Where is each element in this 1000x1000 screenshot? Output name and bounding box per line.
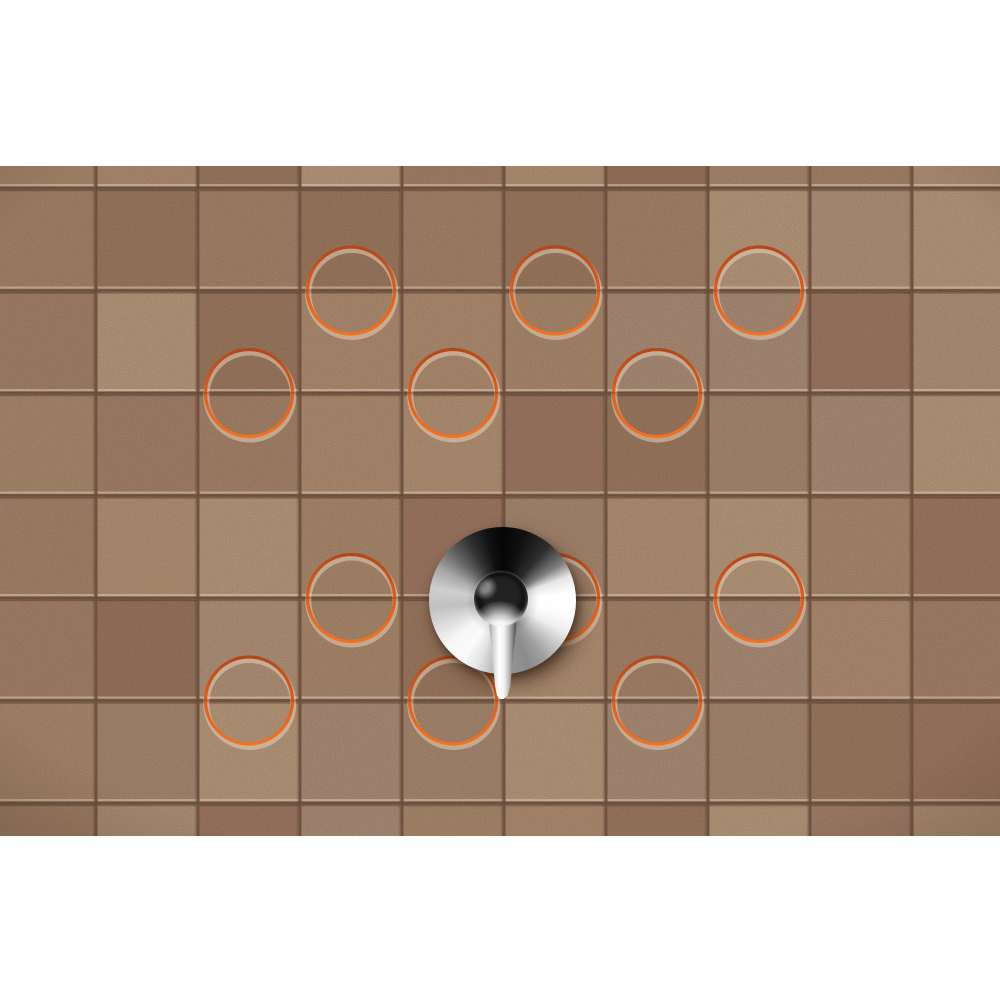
tile-wall xyxy=(0,166,1000,836)
page-background xyxy=(0,0,1000,1000)
valve-knob xyxy=(474,572,528,626)
shower-wall-photo xyxy=(0,166,1000,836)
vignette-overlay xyxy=(0,166,1000,836)
